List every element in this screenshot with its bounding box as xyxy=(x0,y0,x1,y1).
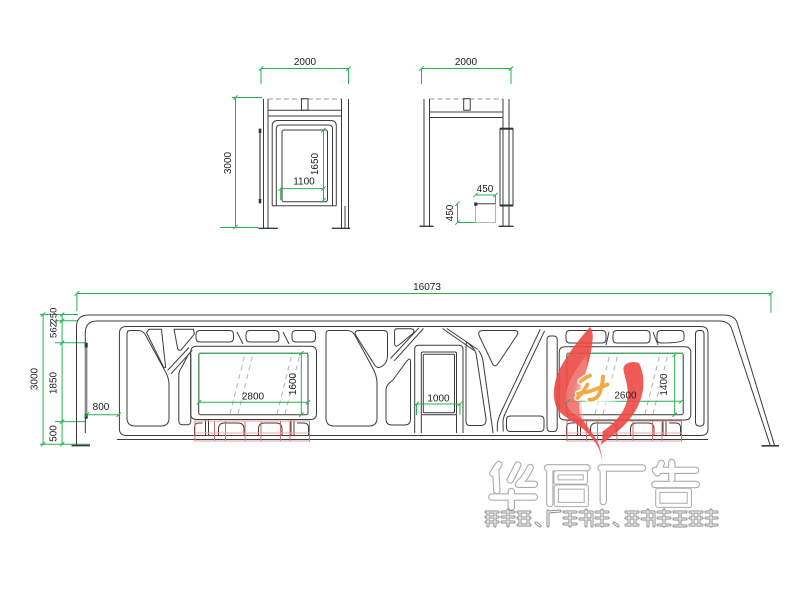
svg-text:16073: 16073 xyxy=(413,282,441,293)
svg-text:562: 562 xyxy=(49,322,60,338)
svg-text:2000: 2000 xyxy=(455,57,478,68)
svg-text:1000: 1000 xyxy=(427,394,450,405)
svg-text:1600: 1600 xyxy=(288,372,299,395)
svg-text:800: 800 xyxy=(93,402,110,413)
svg-text:250: 250 xyxy=(49,308,60,324)
svg-text:1100: 1100 xyxy=(293,177,315,188)
svg-text:3000: 3000 xyxy=(30,367,41,390)
svg-text:450: 450 xyxy=(477,184,494,195)
svg-text:500: 500 xyxy=(49,425,60,442)
svg-text:2000: 2000 xyxy=(294,57,317,68)
svg-text:1650: 1650 xyxy=(310,152,321,175)
svg-text:1850: 1850 xyxy=(49,371,60,394)
svg-text:3000: 3000 xyxy=(223,151,234,174)
svg-text:2600: 2600 xyxy=(614,391,637,402)
svg-text:450: 450 xyxy=(445,204,456,221)
svg-text:1400: 1400 xyxy=(659,373,670,396)
svg-text:2800: 2800 xyxy=(242,392,265,403)
